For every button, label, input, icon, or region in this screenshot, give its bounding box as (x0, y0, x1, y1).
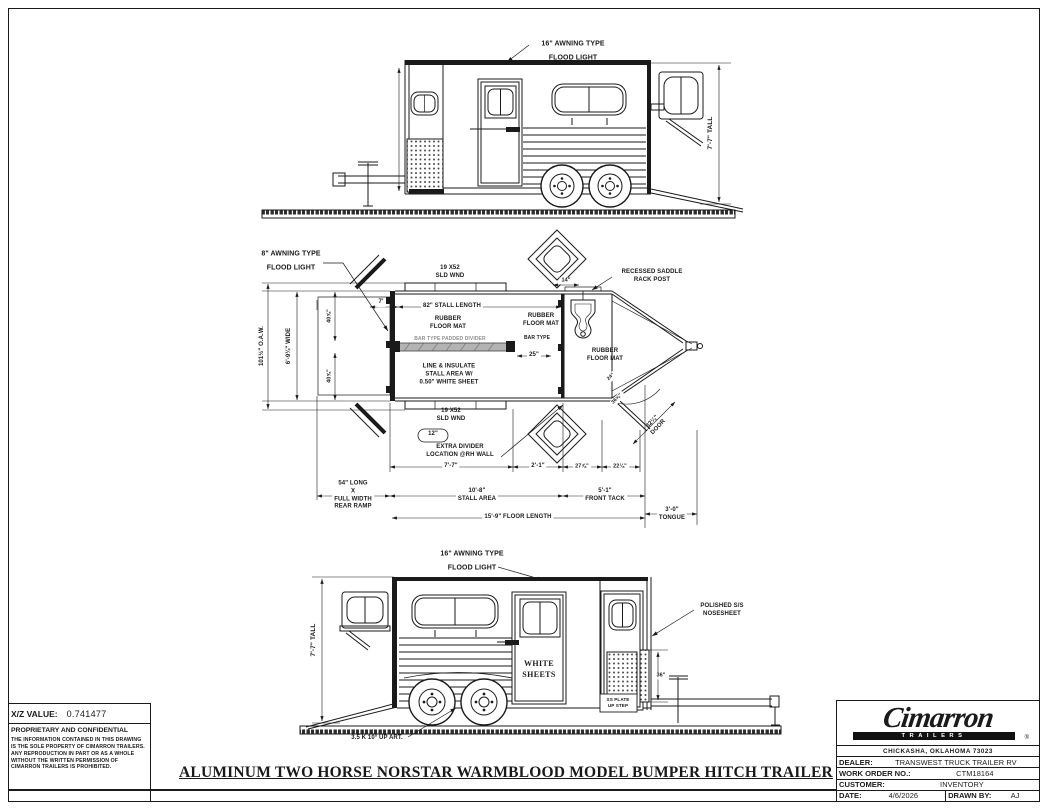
info-block: X/Z VALUE: 0.741477 PROPRIETARY AND CONF… (8, 703, 151, 802)
rear-frame (647, 60, 651, 194)
confidential-note: PROPRIETARY AND CONFIDENTIAL THE INFORMA… (8, 724, 150, 771)
up-step-label: SS PLATE UP STEP (607, 697, 630, 709)
dim-7-7: 7'-7" (442, 463, 459, 471)
stall-window (552, 84, 626, 125)
xz-value: 0.741477 (67, 709, 107, 719)
ground-line (300, 726, 781, 734)
side-view-b (300, 567, 781, 737)
extra-divider-size: 12" (428, 431, 438, 439)
rear-drop-window (340, 592, 390, 650)
coupler (686, 342, 697, 350)
brand-name: Cimarron (835, 702, 1042, 735)
date-value: 4/6/2026 (862, 791, 945, 800)
sliding-window-label-bottom: 19 X52 SLD WND (437, 408, 466, 424)
rear-ramp (651, 189, 743, 212)
stall-window (412, 595, 498, 637)
stall-width-dim: 25" (527, 352, 541, 360)
nose-height-dim: 36" (654, 672, 667, 679)
customer-value: INVENTORY (885, 780, 1039, 789)
bar-type-note: BAR TYPE (524, 335, 550, 342)
half-width-dim-top: 40⅝" (326, 309, 333, 323)
tongue-dim: 3'-0" TONGUE (657, 507, 687, 523)
wheel-icon (461, 679, 507, 725)
registered-mark-icon: ® (1025, 735, 1029, 741)
title-block: Cimarron TRAILERS ® CHICKASHA, OKLAHOMA … (836, 700, 1040, 802)
axle-label: 3.5 K 10° UP ART. (351, 735, 402, 743)
awning-leader (507, 45, 529, 62)
saddle-rack-leader (592, 277, 612, 290)
height-dim-label: 7'-7" TALL (707, 117, 715, 150)
ground-line (262, 210, 735, 218)
stall-area-dim: 10'-8" STALL AREA (456, 488, 498, 504)
awning-flood-light-label: 8" AWNING TYPE FLOOD LIGHT (261, 247, 320, 274)
dim-22-18: 22⅛" (611, 463, 629, 470)
drawn-by-label: DRAWN BY: (948, 791, 991, 800)
wheel-icon (589, 165, 631, 207)
drawing-title: ALUMINUM TWO HORSE NORSTAR WARMBLOOD MOD… (170, 764, 842, 782)
rubber-floor-mat-note: RUBBER FLOOR MAT (430, 316, 466, 332)
rear-ramp-note: 54" LONG X FULL WIDTH REAR RAMP (332, 480, 374, 511)
drawing-sheet: 16" AWNING TYPE FLOOD LIGHT 7'-7" TALL 8… (0, 0, 1048, 810)
drawing-linework (0, 0, 1048, 810)
gravel-guard (407, 139, 443, 192)
dealer-row: DEALER: TRANSWEST TRUCK TRAILER RV (837, 756, 1039, 767)
brand-logo: Cimarron TRAILERS ® (837, 701, 1039, 745)
tack-door (601, 591, 643, 710)
work-order-value: CTM18164 (911, 769, 1039, 778)
bottom-rule (8, 789, 836, 791)
saddle-rack (565, 287, 601, 338)
xz-value-row: X/Z VALUE: 0.741477 (8, 704, 150, 724)
door-latch (506, 127, 520, 132)
extra-divider-note: EXTRA DIVIDER LOCATION @RH WALL (426, 444, 493, 460)
rear-drop-window (651, 72, 703, 146)
drop-window-bottom (528, 405, 586, 463)
nose-guard (640, 650, 649, 702)
side-door (470, 79, 522, 186)
rear-offset-dim: 7' (377, 299, 386, 307)
awning-flood-light-label: 16" AWNING TYPE FLOOD LIGHT (541, 37, 604, 64)
front-tack-dim: 5'-1" FRONT TACK (583, 488, 627, 504)
dealer-value: TRANSWEST TRUCK TRAILER RV (873, 758, 1039, 767)
half-width-dim-bottom: 40⅝" (326, 369, 333, 383)
customer-label: CUSTOMER: (839, 780, 885, 789)
tongue-jack (651, 676, 780, 725)
insulate-note: LINE & INSULATE STALL AREA W/ 0.50" WHIT… (420, 363, 479, 386)
white-sheets-note: WHITE SHEETS (522, 659, 556, 681)
drawn-by-cell: DRAWN BY: AJ (946, 791, 1039, 801)
door-latch (505, 640, 519, 645)
work-order-row: WORK ORDER NO.: CTM18164 (837, 767, 1039, 778)
date-cell: DATE: 4/6/2026 (837, 791, 946, 801)
tongue-jack (333, 162, 405, 206)
customer-row: CUSTOMER: INVENTORY (837, 779, 1039, 790)
roof-edge (405, 60, 651, 65)
overall-width-dim: 101½" O.A.W. (259, 326, 267, 366)
sliding-window-label-top: 19 X52 SLD WND (436, 265, 465, 281)
nosesheet-leader (652, 610, 694, 636)
rubber-floor-mat-note: RUBBER FLOOR MAT (587, 348, 623, 364)
wheel-icon (541, 165, 583, 207)
nosesheet-label: POLISHED S/S NOSESHEET (700, 603, 743, 619)
xz-value-label: X/Z VALUE: (11, 709, 58, 719)
brand-address: CHICKASHA, OKLAHOMA 73023 (837, 745, 1039, 756)
awning-flood-light-label: 16" AWNING TYPE FLOOD LIGHT (440, 547, 503, 574)
center-divider (391, 341, 515, 352)
saddle-rack-label: RECESSED SADDLE RACK POST (622, 269, 683, 285)
date-label: DATE: (839, 791, 862, 800)
extra-divider-leader (501, 405, 563, 457)
rear-frame (392, 577, 397, 708)
dealer-label: DEALER: (839, 758, 873, 767)
rear-ramp (306, 703, 397, 729)
divider-note: BAR TYPE PADDED DIVIDER (414, 336, 485, 343)
stall-length-dim: 82" STALL LENGTH (421, 303, 483, 311)
drop-window-top (528, 230, 586, 288)
dim-2-1: 2'-1" (529, 463, 546, 471)
confidential-body: THE INFORMATION CONTAINED IN THIS DRAWIN… (11, 737, 147, 771)
dim-27-78: 27⅞" (573, 463, 591, 470)
work-order-label: WORK ORDER NO.: (839, 769, 911, 778)
drawn-by-value: AJ (991, 791, 1039, 800)
date-row: DATE: 4/6/2026 DRAWN BY: AJ (837, 790, 1039, 801)
inside-width-dim: 6'-9¼" WIDE (286, 328, 294, 364)
confidential-title: PROPRIETARY AND CONFIDENTIAL (11, 727, 147, 734)
floor-length-dim: 15'-9" FLOOR LENGTH (482, 514, 553, 522)
rack-offset-dim: 14" (559, 277, 572, 284)
sliding-window-top (405, 283, 506, 291)
height-dim-label: 7'-7" TALL (310, 624, 318, 657)
wheel-icon (409, 679, 455, 725)
roof-edge (394, 577, 648, 581)
rubber-floor-mat-note: RUBBER FLOOR MAT (523, 313, 559, 329)
side-view-a (262, 45, 743, 218)
